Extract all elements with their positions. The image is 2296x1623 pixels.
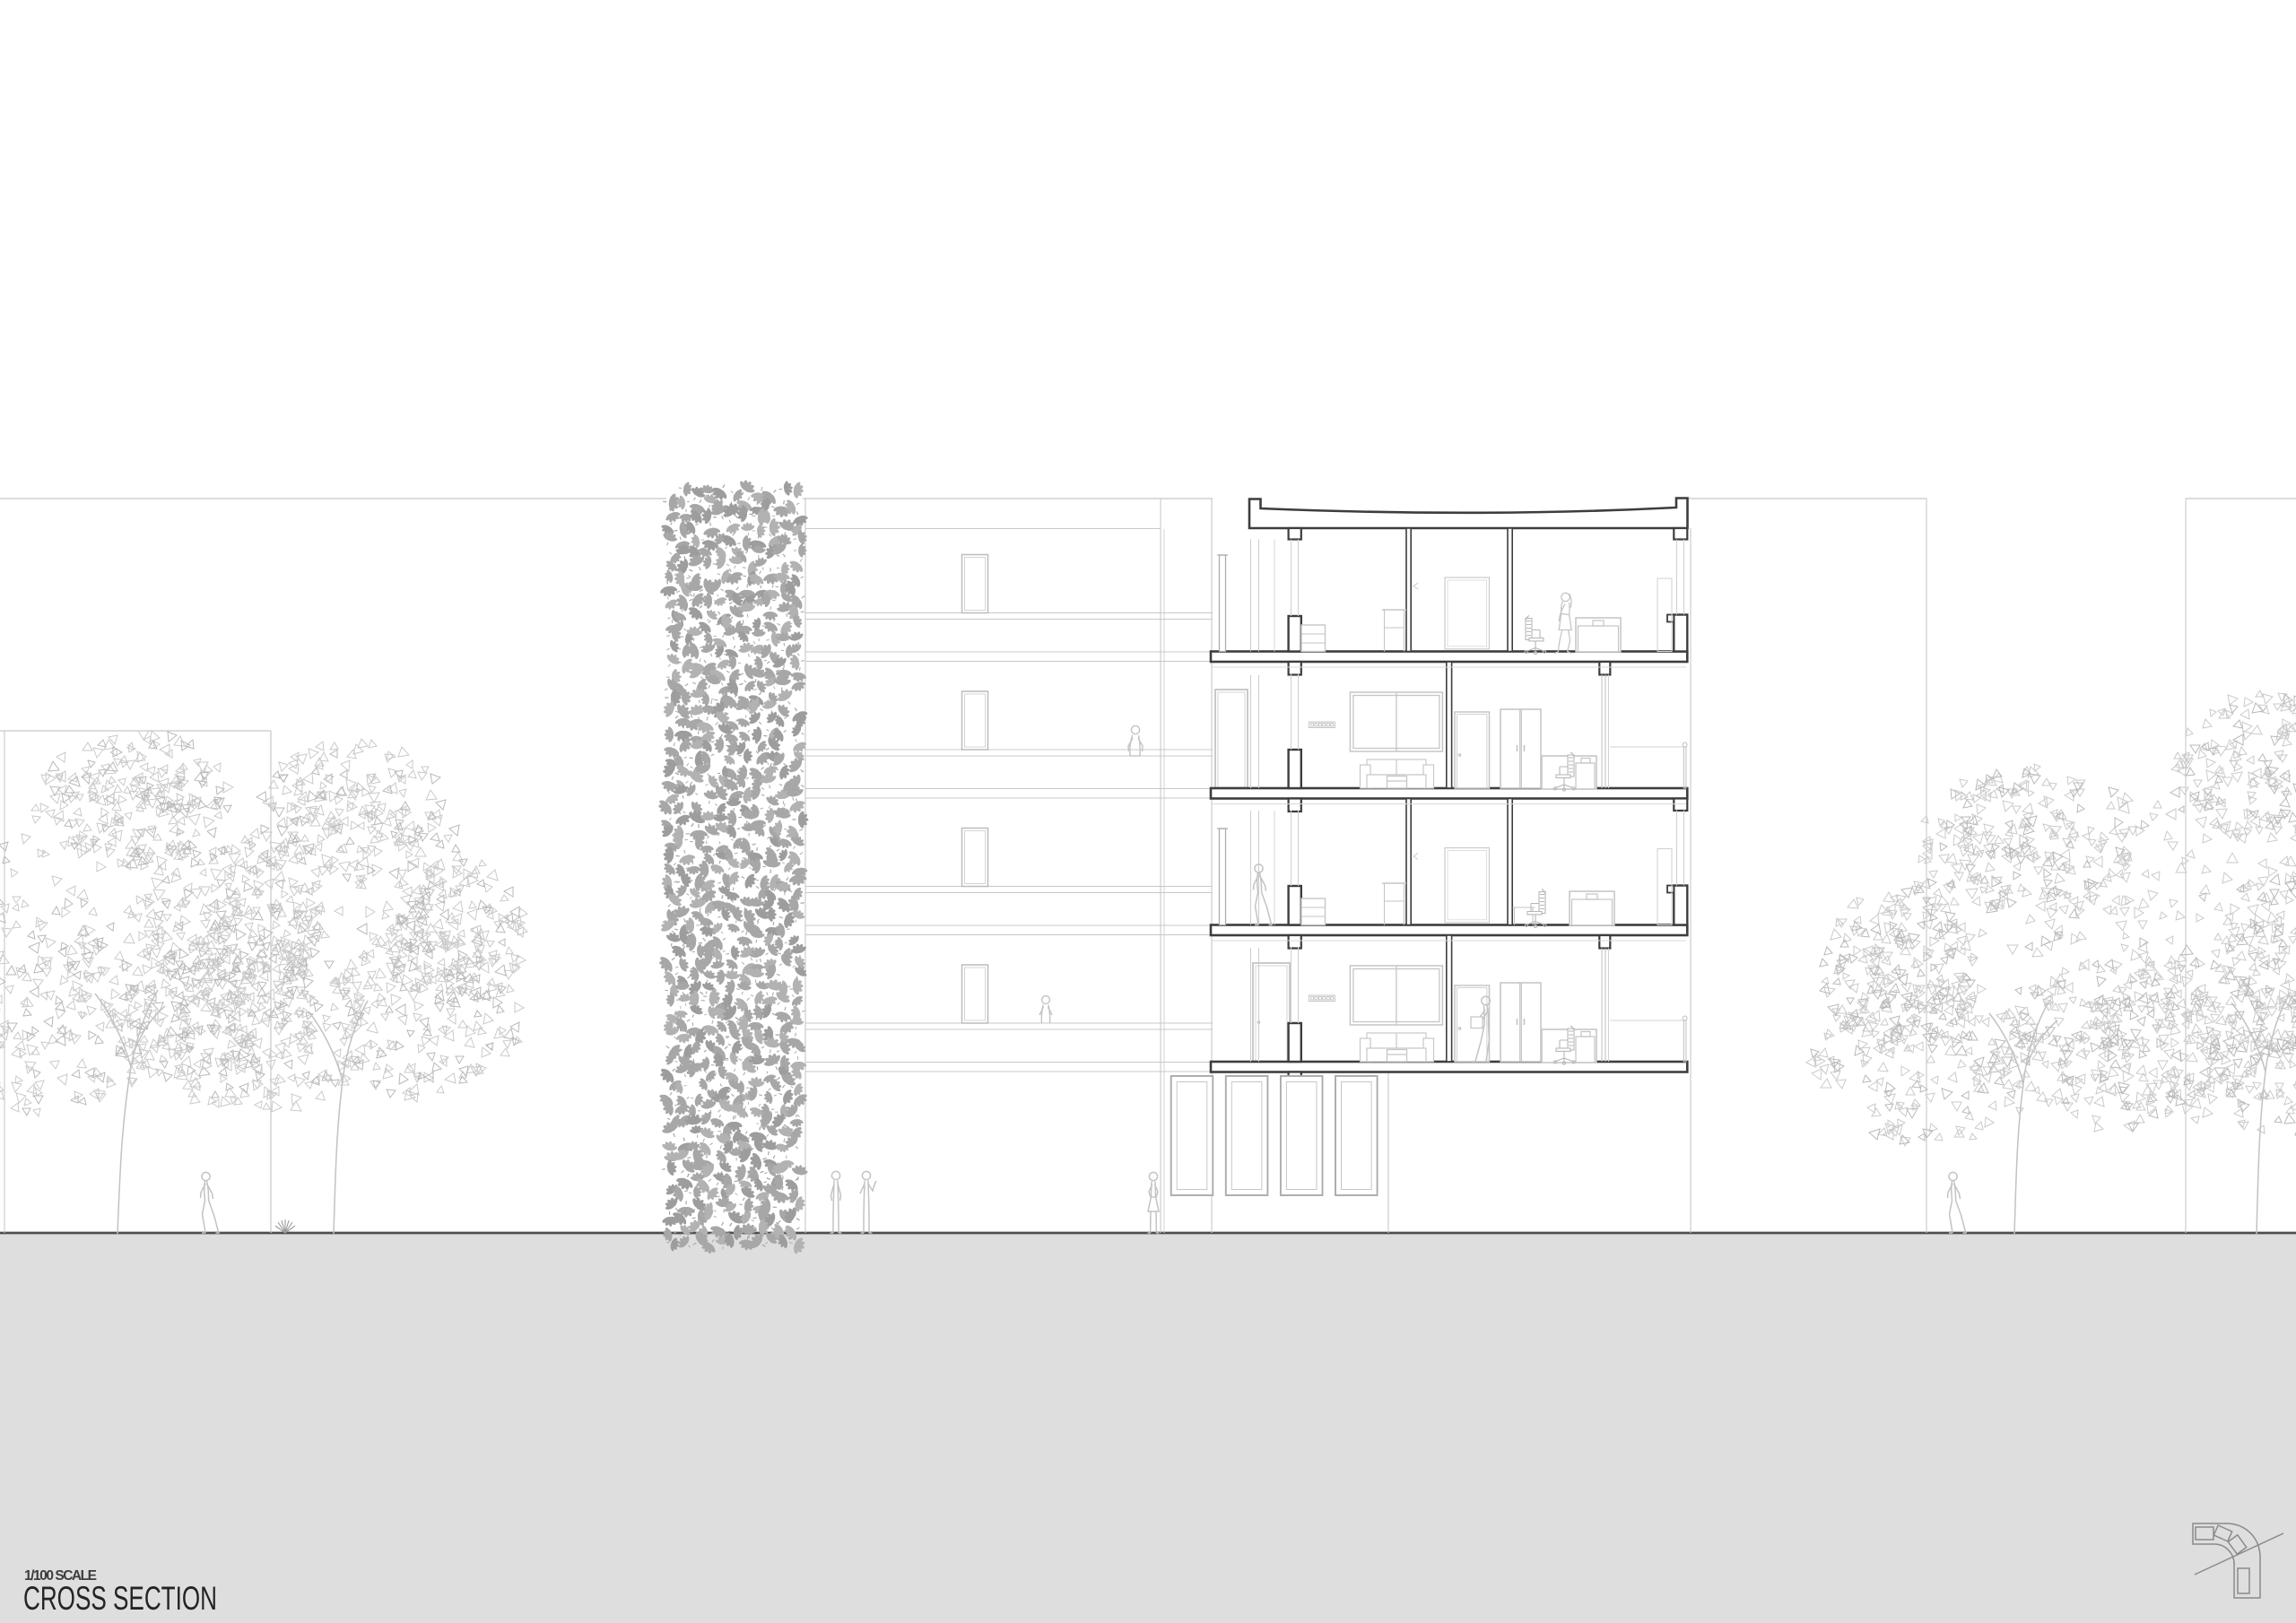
- svg-text:CROSS SECTION: CROSS SECTION: [23, 1580, 217, 1617]
